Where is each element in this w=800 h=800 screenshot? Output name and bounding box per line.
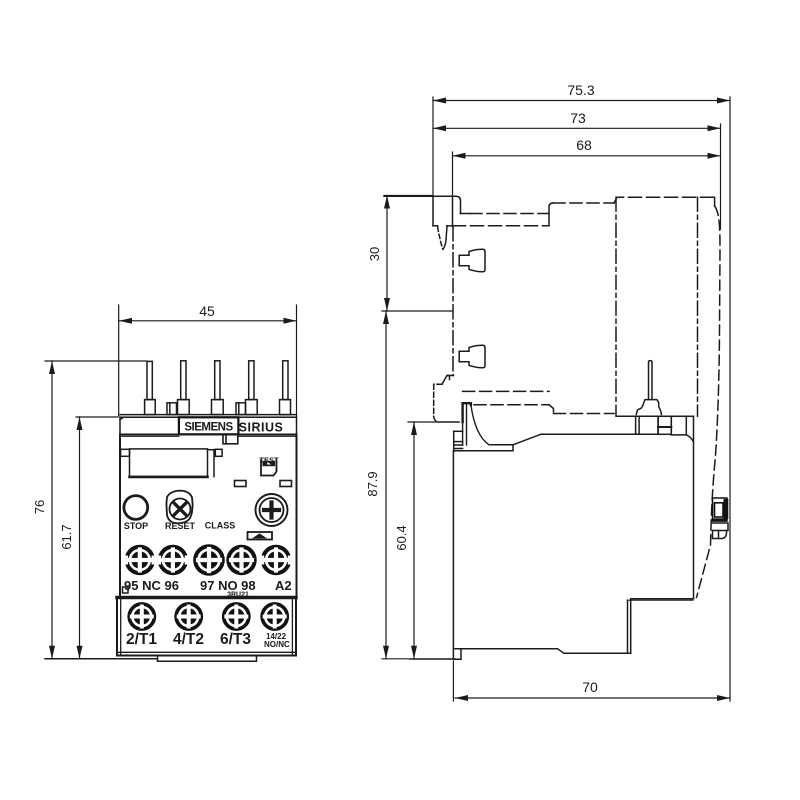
svg-text:6/T3: 6/T3	[220, 631, 251, 648]
svg-text:RESET: RESET	[165, 521, 196, 531]
svg-text:75.3: 75.3	[567, 82, 594, 98]
svg-text:87.9: 87.9	[365, 471, 380, 496]
svg-text:95 NC 96: 95 NC 96	[124, 578, 179, 593]
svg-text:60.4: 60.4	[394, 525, 409, 550]
svg-text:SIEMENS: SIEMENS	[184, 422, 233, 434]
svg-text:2/T1: 2/T1	[126, 631, 157, 648]
svg-text:76: 76	[32, 500, 47, 514]
svg-text:73: 73	[570, 110, 586, 126]
svg-text:SIRIUS: SIRIUS	[239, 421, 284, 435]
svg-text:68: 68	[576, 137, 592, 153]
svg-text:A2: A2	[275, 578, 292, 593]
svg-text:61.7: 61.7	[59, 524, 74, 549]
svg-text:30: 30	[367, 247, 382, 261]
svg-text:4/T2: 4/T2	[173, 631, 204, 648]
svg-text:STOP: STOP	[124, 521, 148, 531]
svg-text:NO/NC: NO/NC	[264, 640, 290, 649]
svg-text:70: 70	[582, 679, 598, 695]
svg-text:45: 45	[199, 303, 215, 319]
svg-text:CLASS: CLASS	[205, 521, 236, 531]
